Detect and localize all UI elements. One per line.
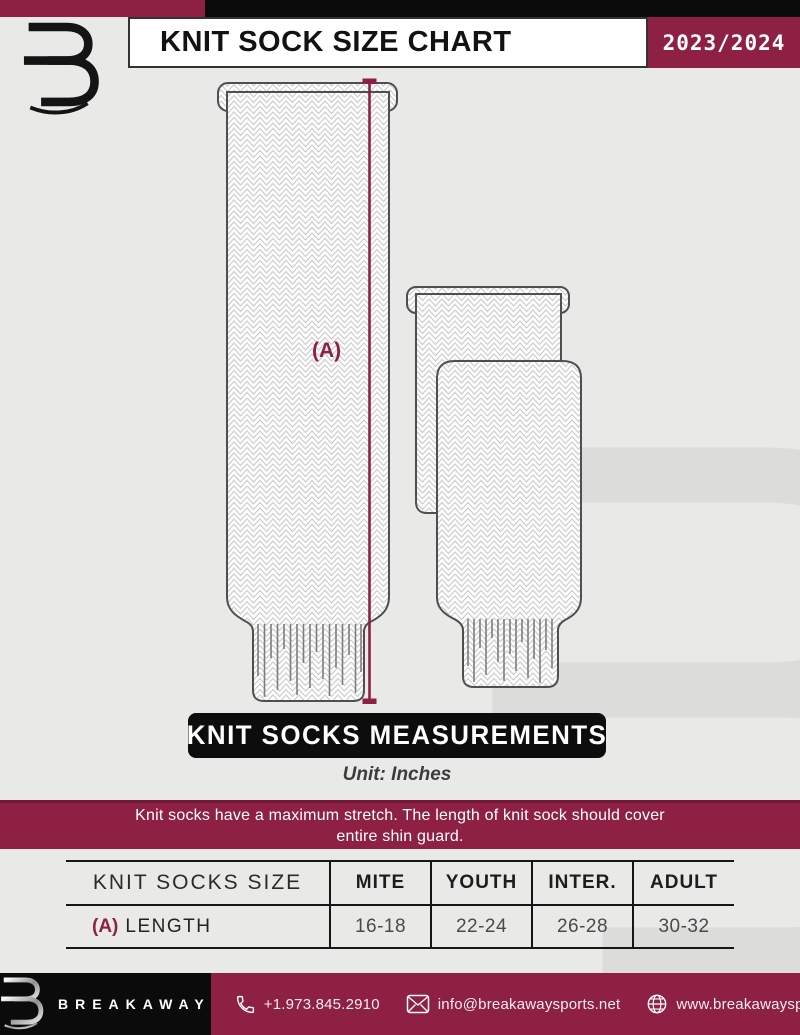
row-label: LENGTH (125, 916, 211, 938)
table-header-inter: INTER. (531, 862, 632, 906)
footer: BREAKAWAY +1.973.845.2910 info@breakaway… (0, 973, 800, 1035)
footer-email-address: info@breakawaysports.net (438, 996, 621, 1013)
title-box: KNIT SOCK SIZE CHART (128, 17, 648, 68)
globe-icon (646, 993, 668, 1015)
table-cell-mite-length: 16-18 (329, 906, 430, 947)
footer-email[interactable]: info@breakawaysports.net (406, 994, 621, 1014)
sock-short (437, 361, 581, 687)
table-cell-adult-length: 30-32 (632, 906, 734, 947)
season-label: 2023/2024 (663, 31, 786, 55)
breakaway-logo (28, 27, 94, 112)
footer-breakaway-logo (0, 976, 46, 1033)
footer-phone[interactable]: +1.973.845.2910 (235, 994, 380, 1015)
footer-brand: BREAKAWAY (0, 973, 211, 1035)
footer-brand-name: BREAKAWAY (58, 996, 211, 1012)
page-title: KNIT SOCK SIZE CHART (160, 26, 512, 59)
table-header-youth: YOUTH (430, 862, 531, 906)
table-header-mite: MITE (329, 862, 430, 906)
table-row-length-label: (A) LENGTH (66, 906, 329, 947)
measurements-title: KNIT SOCKS MEASUREMENTS (187, 720, 608, 751)
table-header-adult: ADULT (632, 862, 734, 906)
footer-website[interactable]: www.breakawaysports.net (646, 993, 800, 1015)
phone-icon (235, 994, 256, 1015)
measurements-banner: KNIT SOCKS MEASUREMENTS (188, 713, 606, 758)
size-chart-poster: KNIT SOCK SIZE CHART 2023/2024 (A) KNIT … (0, 0, 800, 1035)
measurement-label-a: (A) (312, 339, 341, 363)
stretch-notice: Knit socks have a maximum stretch. The l… (0, 800, 800, 849)
unit-label: Unit: Inches (188, 764, 606, 786)
footer-contact: +1.973.845.2910 info@breakawaysports.net… (211, 973, 800, 1035)
notice-line-2: entire shin guard. (336, 826, 463, 847)
footer-website-url: www.breakawaysports.net (676, 996, 800, 1013)
row-label-prefix: (A) (92, 916, 118, 938)
top-strip-maroon (0, 0, 205, 17)
table-cell-youth-length: 22-24 (430, 906, 531, 947)
top-strip-black (205, 0, 800, 17)
footer-phone-number: +1.973.845.2910 (264, 996, 380, 1013)
envelope-icon (406, 994, 430, 1014)
notice-line-1: Knit socks have a maximum stretch. The l… (135, 805, 665, 826)
table-header-size: KNIT SOCKS SIZE (66, 862, 329, 906)
size-table: KNIT SOCKS SIZE MITE YOUTH INTER. ADULT … (66, 860, 734, 949)
table-cell-inter-length: 26-28 (531, 906, 632, 947)
season-badge: 2023/2024 (648, 17, 800, 68)
top-strip (0, 0, 800, 17)
